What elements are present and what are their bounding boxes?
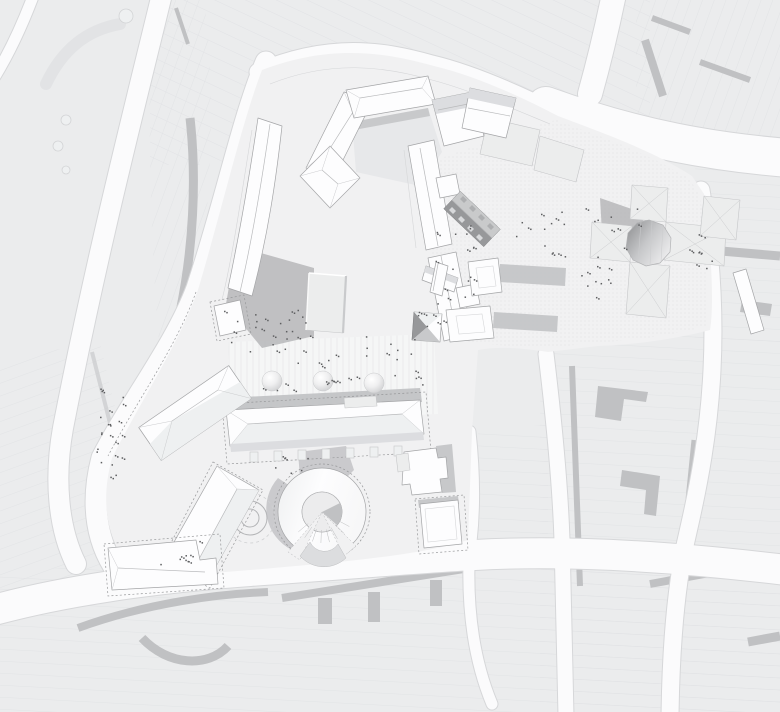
person-dot: [188, 561, 190, 563]
person-dot: [439, 235, 441, 237]
person-dot: [276, 350, 278, 352]
person-dot: [437, 234, 439, 236]
person-dot: [528, 227, 530, 229]
person-dot: [111, 411, 113, 413]
person-dot: [185, 560, 187, 562]
person-dot: [100, 417, 102, 419]
person-dot: [100, 388, 102, 390]
person-dot: [181, 556, 183, 558]
person-dot: [96, 451, 98, 453]
person-dot: [450, 299, 452, 301]
person-dot: [421, 313, 423, 315]
person-dot: [236, 333, 238, 335]
person-dot: [437, 303, 439, 305]
person-dot: [473, 247, 475, 249]
person-dot: [122, 457, 124, 459]
person-dot: [305, 322, 307, 324]
person-dot: [273, 335, 275, 337]
person-dot: [617, 228, 619, 230]
person-dot: [624, 248, 626, 250]
person-dot: [255, 314, 257, 316]
person-dot: [706, 268, 708, 270]
person-dot: [447, 290, 449, 292]
person-dot: [112, 436, 114, 438]
person-dot: [470, 277, 472, 279]
person-dot: [469, 250, 471, 252]
person-dot: [466, 233, 468, 235]
person-dot: [335, 382, 337, 384]
person-dot: [473, 294, 475, 296]
person-dot: [286, 331, 288, 333]
person-dot: [640, 226, 642, 228]
person-dot: [103, 390, 105, 392]
person-dot: [599, 267, 601, 269]
person-dot: [264, 330, 266, 332]
person-dot: [416, 378, 418, 380]
person-dot: [446, 322, 448, 324]
person-dot: [620, 229, 622, 231]
person-dot: [110, 435, 112, 437]
person-dot: [597, 220, 599, 222]
person-dot: [324, 367, 326, 369]
person-dot: [263, 388, 265, 390]
person-dot: [588, 209, 590, 211]
person-dot: [101, 462, 103, 464]
person-dot: [115, 442, 117, 444]
person-dot: [445, 289, 447, 291]
person-dot: [328, 360, 330, 362]
person-dot: [689, 249, 691, 251]
person-dot: [608, 279, 610, 281]
person-dot: [587, 285, 589, 287]
person-dot: [610, 283, 612, 285]
person-dot: [285, 457, 287, 459]
person-dot: [626, 249, 628, 251]
person-dot: [231, 342, 233, 344]
person-dot: [448, 298, 450, 300]
person-dot: [121, 422, 123, 424]
person-dot: [291, 473, 293, 475]
person-dot: [292, 311, 294, 313]
person-dot: [101, 432, 103, 434]
person-dot: [433, 314, 435, 316]
person-dot: [110, 425, 112, 427]
person-dot: [638, 224, 640, 226]
person-dot: [476, 280, 478, 282]
person-dot: [601, 283, 603, 285]
person-dot: [122, 397, 124, 399]
person-dot: [97, 449, 99, 451]
person-dot: [611, 269, 613, 271]
person-dot: [305, 351, 307, 353]
person-dot: [468, 280, 470, 282]
person-dot: [191, 562, 193, 564]
person-dot: [586, 208, 588, 210]
person-dot: [202, 542, 204, 544]
person-dot: [558, 219, 560, 221]
person-dot: [123, 404, 125, 406]
person-dot: [310, 335, 312, 337]
person-dot: [250, 351, 252, 353]
person-dot: [701, 253, 703, 255]
person-dot: [598, 298, 600, 300]
person-dot: [285, 383, 287, 385]
person-dot: [113, 478, 115, 480]
person-dot: [637, 208, 639, 210]
person-dot: [438, 262, 440, 264]
person-dot: [336, 355, 338, 357]
site-plan-canvas: [0, 0, 780, 712]
person-dot: [339, 382, 341, 384]
person-dot: [192, 556, 194, 558]
person-dot: [357, 376, 359, 378]
person-dot: [124, 436, 126, 438]
person-dot: [280, 323, 282, 325]
person-dot: [331, 380, 333, 382]
person-dot: [394, 375, 396, 377]
person-dot: [275, 467, 277, 469]
person-dot: [396, 359, 398, 361]
person-dot: [119, 421, 121, 423]
person-dot: [437, 232, 439, 234]
person-dot: [516, 236, 518, 238]
person-dot: [267, 320, 269, 322]
person-dot: [297, 337, 299, 339]
person-dot: [561, 212, 563, 214]
person-dot: [596, 297, 598, 299]
person-dot: [326, 381, 328, 383]
person-dot: [255, 327, 257, 329]
person-dot: [418, 376, 420, 378]
person-dot: [117, 443, 119, 445]
person-dot: [279, 352, 281, 354]
person-dot: [424, 313, 426, 315]
person-dot: [415, 371, 417, 373]
person-dot: [435, 316, 437, 318]
person-dot: [289, 319, 291, 321]
person-dot: [389, 354, 391, 356]
person-dot: [589, 273, 591, 275]
person-dot: [312, 337, 314, 339]
person-dot: [455, 234, 457, 236]
person-dot: [426, 315, 428, 317]
person-dot: [587, 272, 589, 274]
person-dot: [397, 350, 399, 352]
person-dot: [224, 311, 226, 313]
person-dot: [190, 555, 192, 557]
person-dot: [594, 221, 596, 223]
person-dot: [285, 349, 287, 351]
person-dot: [366, 336, 368, 338]
tower-building: [306, 273, 346, 333]
person-dot: [366, 355, 368, 357]
person-dot: [420, 378, 422, 380]
person-dot: [261, 329, 263, 331]
person-dot: [109, 410, 111, 412]
person-dot: [552, 253, 554, 255]
person-dot: [581, 275, 583, 277]
market-hall-building: [222, 388, 431, 464]
person-dot: [110, 477, 112, 479]
person-dot: [418, 315, 420, 317]
person-dot: [115, 475, 117, 477]
person-dot: [422, 384, 424, 386]
person-dot: [293, 390, 295, 392]
person-dot: [551, 223, 553, 225]
person-dot: [199, 541, 201, 543]
person-dot: [302, 316, 304, 318]
person-dot: [597, 257, 599, 259]
site-plan: [0, 0, 780, 712]
person-dot: [556, 218, 558, 220]
person-dot: [427, 326, 429, 328]
person-dot: [303, 350, 305, 352]
person-dot: [554, 254, 556, 256]
person-dot: [160, 564, 162, 566]
person-dot: [101, 434, 103, 436]
person-dot: [338, 356, 340, 358]
person-dot: [522, 222, 524, 224]
person-dot: [614, 231, 616, 233]
person-dot: [452, 269, 454, 271]
person-dot: [564, 224, 566, 226]
person-dot: [467, 249, 469, 251]
person-dot: [286, 338, 288, 340]
person-dot: [366, 348, 368, 350]
person-dot: [234, 331, 236, 333]
person-dot: [544, 245, 546, 247]
person-dot: [283, 456, 285, 458]
person-dot: [112, 464, 114, 466]
person-dot: [696, 264, 698, 266]
person-dot: [108, 424, 110, 426]
person-dot: [275, 337, 277, 339]
person-dot: [277, 390, 279, 392]
person-dot: [711, 261, 713, 263]
person-dot: [544, 229, 546, 231]
person-dot: [296, 391, 298, 393]
person-dot: [297, 363, 299, 365]
person-dot: [256, 321, 258, 323]
person-dot: [359, 378, 361, 380]
person-dot: [470, 225, 472, 227]
person-dot: [418, 372, 420, 374]
person-dot: [558, 253, 560, 255]
person-dot: [297, 310, 299, 312]
person-dot: [693, 252, 695, 254]
person-dot: [530, 229, 532, 231]
person-dot: [386, 353, 388, 355]
person-dot: [321, 363, 323, 365]
person-dot: [560, 255, 562, 257]
person-dot: [351, 379, 353, 381]
person-dot: [272, 344, 274, 346]
person-dot: [300, 338, 302, 340]
person-dot: [699, 234, 701, 236]
person-dot: [609, 268, 611, 270]
person-dot: [414, 339, 416, 341]
person-dot: [124, 458, 126, 460]
person-dot: [286, 459, 288, 461]
person-dot: [226, 312, 228, 314]
person-dot: [437, 322, 439, 324]
person-dot: [319, 362, 321, 364]
person-dot: [301, 470, 303, 472]
person-dot: [327, 384, 329, 386]
person-dot: [411, 353, 413, 355]
person-dot: [122, 435, 124, 437]
person-dot: [294, 312, 296, 314]
person-dot: [419, 312, 421, 314]
person-dot: [440, 323, 442, 325]
person-dot: [474, 279, 476, 281]
person-dot: [698, 252, 700, 254]
person-dot: [183, 557, 185, 559]
person-dot: [104, 392, 106, 394]
person-dot: [292, 331, 294, 333]
person-dot: [541, 214, 543, 216]
person-dot: [691, 250, 693, 252]
person-dot: [611, 230, 613, 232]
person-dot: [307, 458, 309, 460]
person-dot: [436, 261, 438, 263]
fountain-dome: [262, 371, 282, 391]
person-dot: [237, 321, 239, 323]
person-dot: [704, 237, 706, 239]
person-dot: [543, 215, 545, 217]
person-dot: [475, 248, 477, 250]
person-dot: [465, 296, 467, 298]
person-dot: [115, 455, 117, 457]
person-dot: [180, 559, 182, 561]
person-dot: [125, 405, 127, 407]
fountain-dome: [313, 371, 333, 391]
person-dot: [333, 381, 335, 383]
person-dot: [265, 389, 267, 391]
person-dot: [701, 235, 703, 237]
person-dot: [185, 555, 187, 557]
person-dot: [390, 344, 392, 346]
person-dot: [443, 320, 445, 322]
person-dot: [265, 319, 267, 321]
person-dot: [117, 456, 119, 458]
person-dot: [595, 281, 597, 283]
person-dot: [287, 384, 289, 386]
person-dot: [322, 366, 324, 368]
person-dot: [337, 381, 339, 383]
person-dot: [470, 228, 472, 230]
person-dot: [348, 378, 350, 380]
person-dot: [565, 256, 567, 258]
person-dot: [698, 265, 700, 267]
fountain-dome: [364, 373, 384, 393]
person-dot: [611, 216, 613, 218]
person-dot: [597, 266, 599, 268]
